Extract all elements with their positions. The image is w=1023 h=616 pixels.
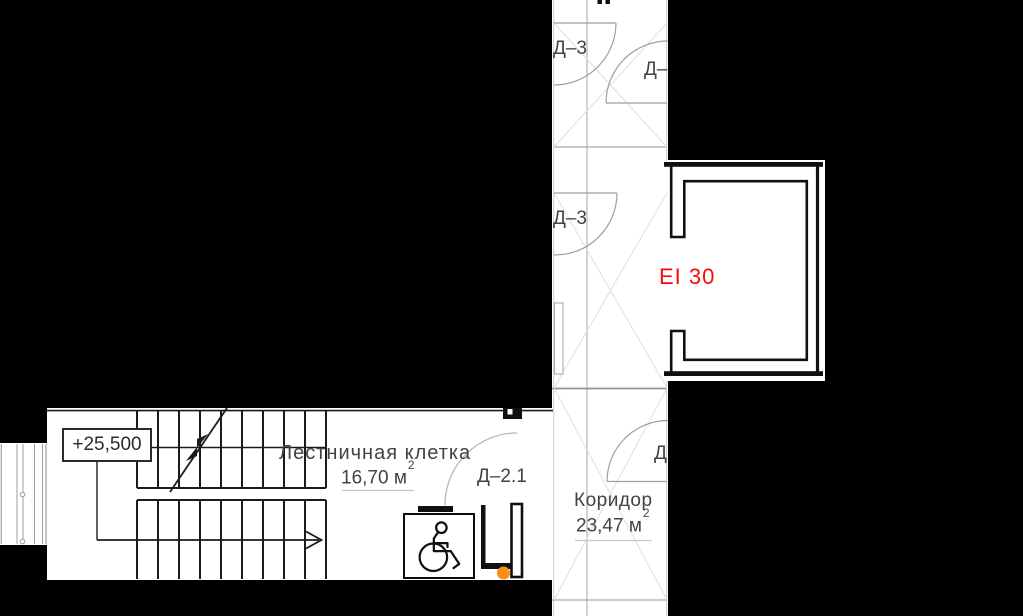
room-label-staircase: Лестничная клетка [279,443,471,463]
elevation-value: +25,500 [72,434,141,456]
floor-plan-canvas: Д–3 Д– Д–3 EI 30 Лестничная клетка 16,70… [0,0,1023,616]
wheelchair-accessibility-icon [405,515,473,577]
fire-rating-label: EI 30 [659,266,715,288]
door-label-d3-top: Д–3 [553,39,587,58]
door-label-top-right: Д– [644,60,668,79]
area-superscript: 2 [408,458,415,472]
area-superscript: 2 [643,506,650,520]
wall-section-fragment [0,443,47,545]
room-area-corridor: 23,47 м2 [576,514,649,535]
area-value: 16,70 м [341,467,407,488]
door-label-clip: Д [654,444,667,466]
elevation-marker: +25,500 [62,428,152,462]
room-label-corridor: Коридор [574,491,653,510]
door-label-corridor: Д [654,444,667,463]
door-label-d21: Д–2.1 [477,467,527,486]
door-label-d3-middle: Д–3 [553,209,587,228]
room-area-staircase: 16,70 м2 [341,466,414,487]
wheelchair-accessibility-box [403,513,475,579]
door-label-clip: Д– [644,60,668,84]
area-value: 23,47 м [576,515,642,536]
